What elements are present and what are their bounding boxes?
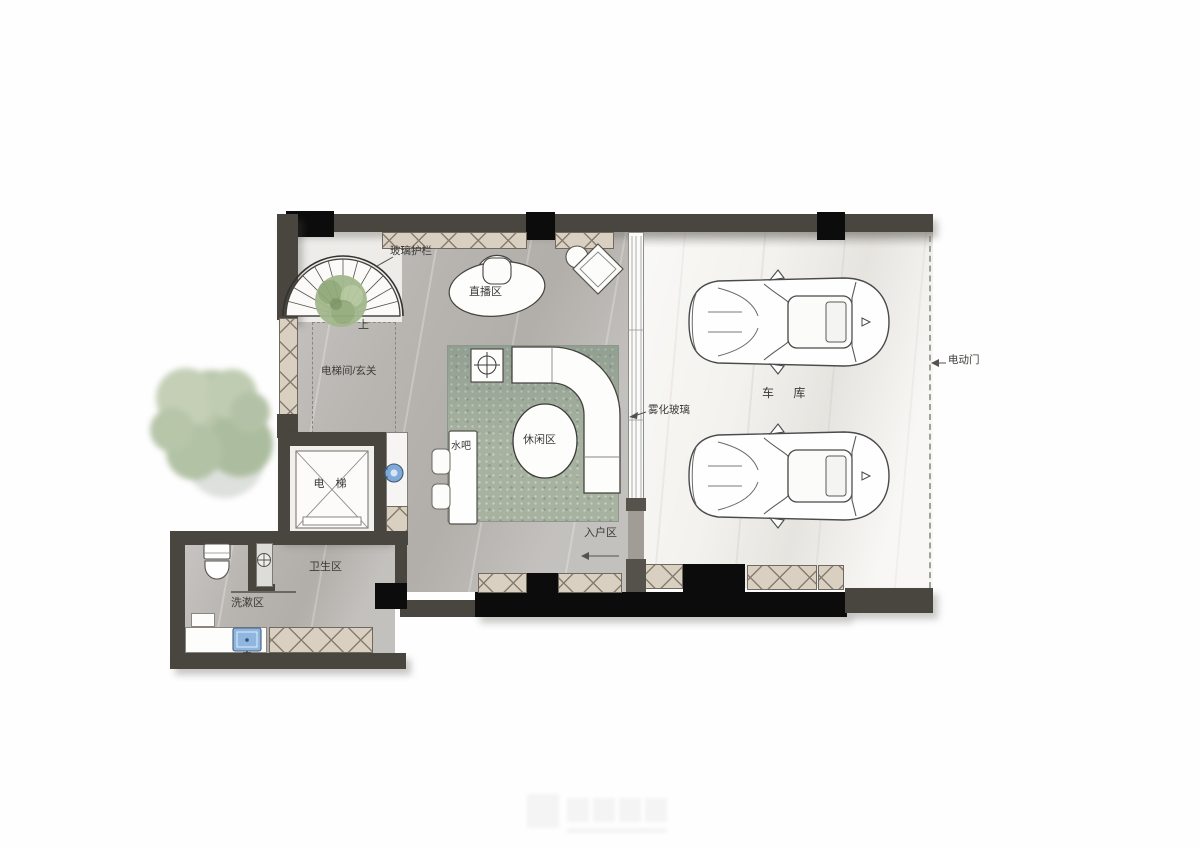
car-1: [689, 270, 889, 374]
bar-chair: [432, 484, 450, 509]
side-table: [471, 349, 503, 382]
label-glass-railing: 玻璃护栏: [390, 245, 432, 257]
label-wash: 洗漱区: [231, 597, 264, 610]
label-entry: 入户区: [584, 527, 617, 540]
arrow-icon: [931, 359, 939, 367]
fog-glass-lines: [629, 236, 644, 498]
arrow-icon: [581, 552, 589, 560]
tree: [150, 368, 273, 498]
floor-plan: 玻璃护栏 直播区 上 电梯间/玄关 水吧 休闲区 雾化玻璃 入户区 车 库 电动…: [0, 0, 1200, 847]
car-2: [689, 424, 889, 528]
label-elevator: 电 梯: [296, 478, 368, 491]
label-electric-door: 电动门: [948, 354, 980, 366]
toilet: [204, 544, 230, 579]
label-lounge: 休闲区: [523, 434, 556, 447]
furniture-layer: [0, 0, 1200, 847]
label-sanitary: 卫生区: [309, 561, 342, 574]
arrow-icon: [629, 412, 638, 419]
label-fog-glass: 雾化玻璃: [648, 404, 690, 416]
label-live-area: 直播区: [469, 286, 502, 299]
label-elevator-hall: 电梯间/玄关: [321, 365, 376, 377]
device-blue: [383, 464, 403, 482]
glass-railing-leader: [377, 257, 393, 266]
wash-basin: [233, 628, 261, 657]
label-water-bar: 水吧: [451, 441, 471, 453]
label-up: 上: [358, 319, 369, 332]
bar-chair: [432, 449, 450, 474]
label-garage: 车 库: [762, 387, 813, 401]
fixture-valve-icon: [231, 553, 296, 592]
desk-chair: [483, 258, 511, 284]
